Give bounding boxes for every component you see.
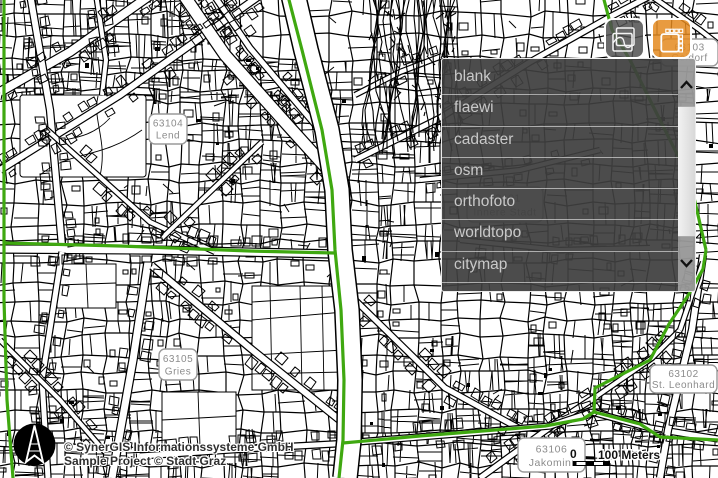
svg-text:Lend: Lend xyxy=(156,131,180,142)
svg-text:63104: 63104 xyxy=(153,119,183,130)
svg-text:63105: 63105 xyxy=(163,354,193,365)
svg-text:0: 0 xyxy=(570,447,577,461)
svg-text:Gries: Gries xyxy=(165,366,191,377)
svg-text:100 Meters: 100 Meters xyxy=(598,448,660,462)
svg-text:St. Leonhard: St. Leonhard xyxy=(652,380,715,391)
svg-text:63102: 63102 xyxy=(668,369,698,380)
